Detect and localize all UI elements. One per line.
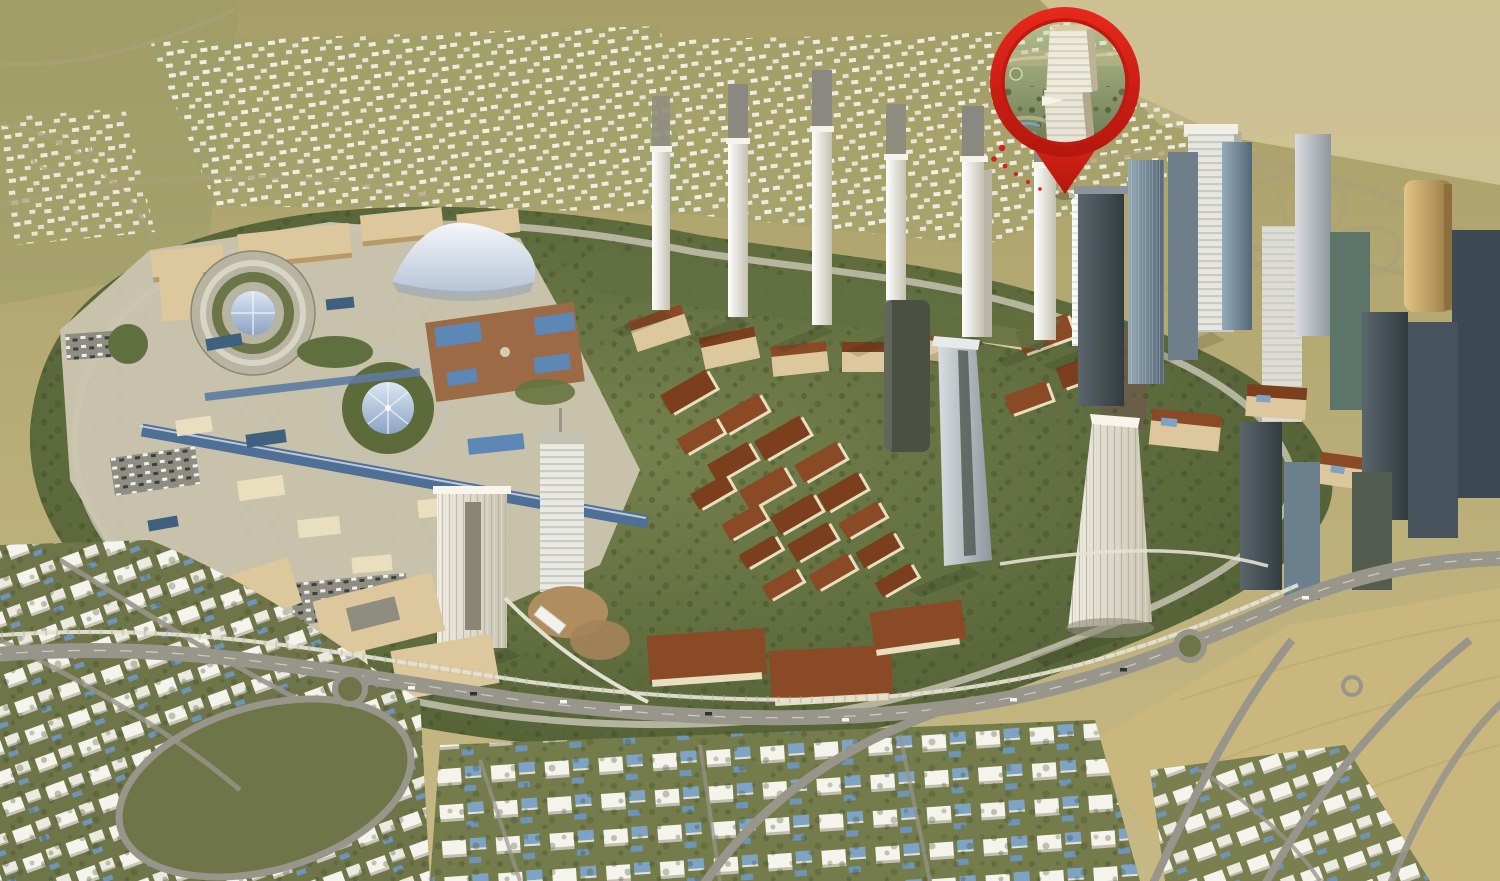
white-grid-tower-sw	[540, 408, 584, 592]
aerial-render	[0, 0, 1500, 881]
roundabout	[1176, 632, 1204, 660]
plaza-circle-south	[332, 352, 444, 464]
slender-tower	[810, 70, 834, 325]
silver-tower	[1295, 134, 1331, 336]
slate-tower	[1408, 322, 1458, 538]
dark-tower	[1074, 186, 1128, 406]
navy-slab-tower	[1452, 230, 1500, 498]
slender-tower	[650, 96, 672, 310]
slender-tower	[884, 104, 908, 330]
roundabout	[335, 674, 365, 704]
glass-tower	[1168, 152, 1198, 360]
gold-tower	[1404, 180, 1452, 312]
glass-tower	[1222, 142, 1252, 330]
glass-tower-low	[1284, 462, 1320, 600]
dark-curved-tower	[884, 300, 930, 452]
plaza-circle-west	[191, 251, 315, 375]
aerial-render-stage	[0, 0, 1500, 881]
white-twin-tower	[433, 486, 511, 648]
bus	[620, 706, 632, 710]
slender-tower	[726, 84, 750, 317]
